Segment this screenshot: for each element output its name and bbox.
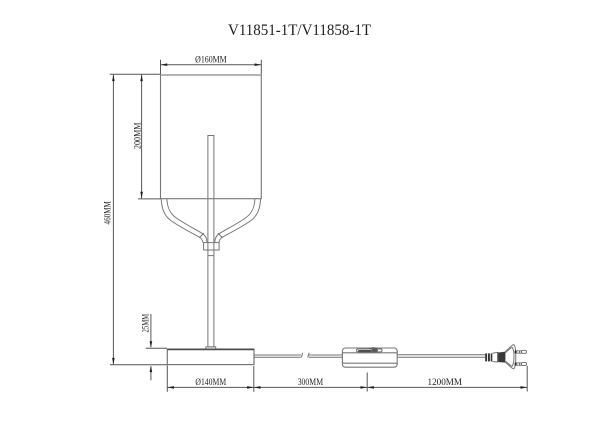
svg-text:460MM: 460MM: [103, 201, 113, 225]
svg-text:V11851-1T/V11858-1T: V11851-1T/V11858-1T: [228, 22, 371, 39]
svg-text:300MM: 300MM: [298, 378, 324, 388]
svg-text:200MM: 200MM: [134, 122, 144, 149]
svg-text:25MM: 25MM: [142, 314, 152, 333]
svg-text:Ø160MM: Ø160MM: [195, 56, 227, 66]
svg-text:1200MM: 1200MM: [428, 378, 463, 388]
svg-text:Ø140MM: Ø140MM: [195, 378, 226, 388]
